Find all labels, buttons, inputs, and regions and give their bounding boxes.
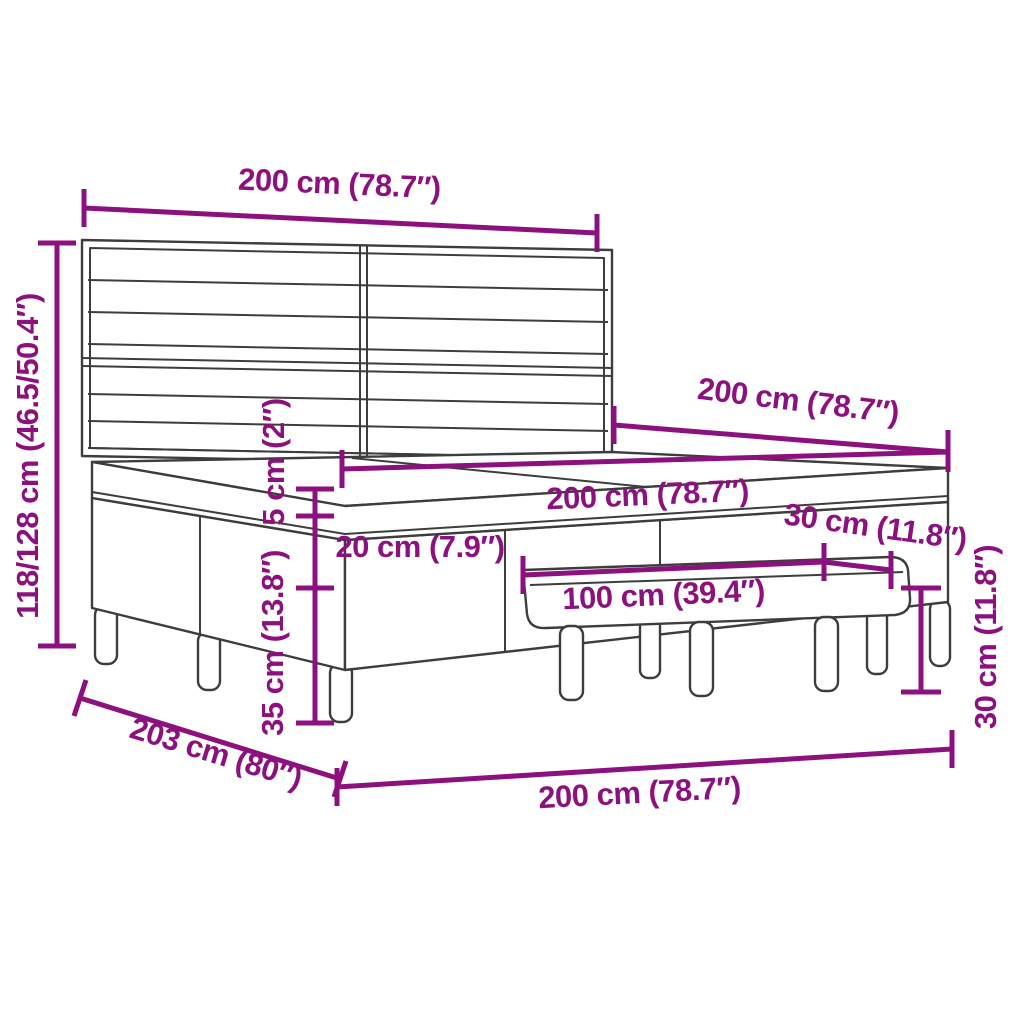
dim-total-height: 118/128 cm (46.5/50.4″): [10, 243, 76, 646]
dim-headboard-width: 200 cm (78.7″): [84, 162, 597, 252]
dim-label-topper-height: 5 cm (2″): [256, 398, 291, 526]
bed-leg: [930, 600, 950, 666]
dim-label-bed-width: 200 cm (78.7″): [537, 770, 741, 816]
dim-label-bed-length: 200 cm (78.7″): [696, 371, 901, 430]
dim-label-bench-height: 30 cm (11.8″): [968, 545, 1003, 729]
bed-leg: [95, 606, 117, 664]
dim-label-total-height: 118/128 cm (46.5/50.4″): [10, 293, 45, 619]
dim-label-base-height: 35 cm (13.8″): [255, 550, 290, 736]
dim-total-length: 203 cm (80″): [74, 680, 346, 797]
headboard: [82, 240, 612, 466]
bench-front-leg: [560, 626, 583, 700]
dim-label-mattress-height: 20 cm (7.9″): [335, 529, 504, 564]
dim-label-headboard-width: 200 cm (78.7″): [237, 162, 441, 206]
bench-front-leg: [815, 617, 838, 691]
diagram-page: 200 cm (78.7″) 118/128 cm (46.5/50.4″) 2…: [0, 0, 1024, 1024]
bed-leg: [198, 632, 220, 690]
bed-drawing: [82, 240, 950, 722]
bench-back-leg: [867, 608, 887, 674]
bench-front-leg: [690, 622, 713, 696]
bed-leg: [330, 664, 352, 722]
bed-dimension-diagram: 200 cm (78.7″) 118/128 cm (46.5/50.4″) 2…: [0, 0, 1024, 1024]
dim-bed-width: 200 cm (78.7″): [337, 730, 952, 815]
